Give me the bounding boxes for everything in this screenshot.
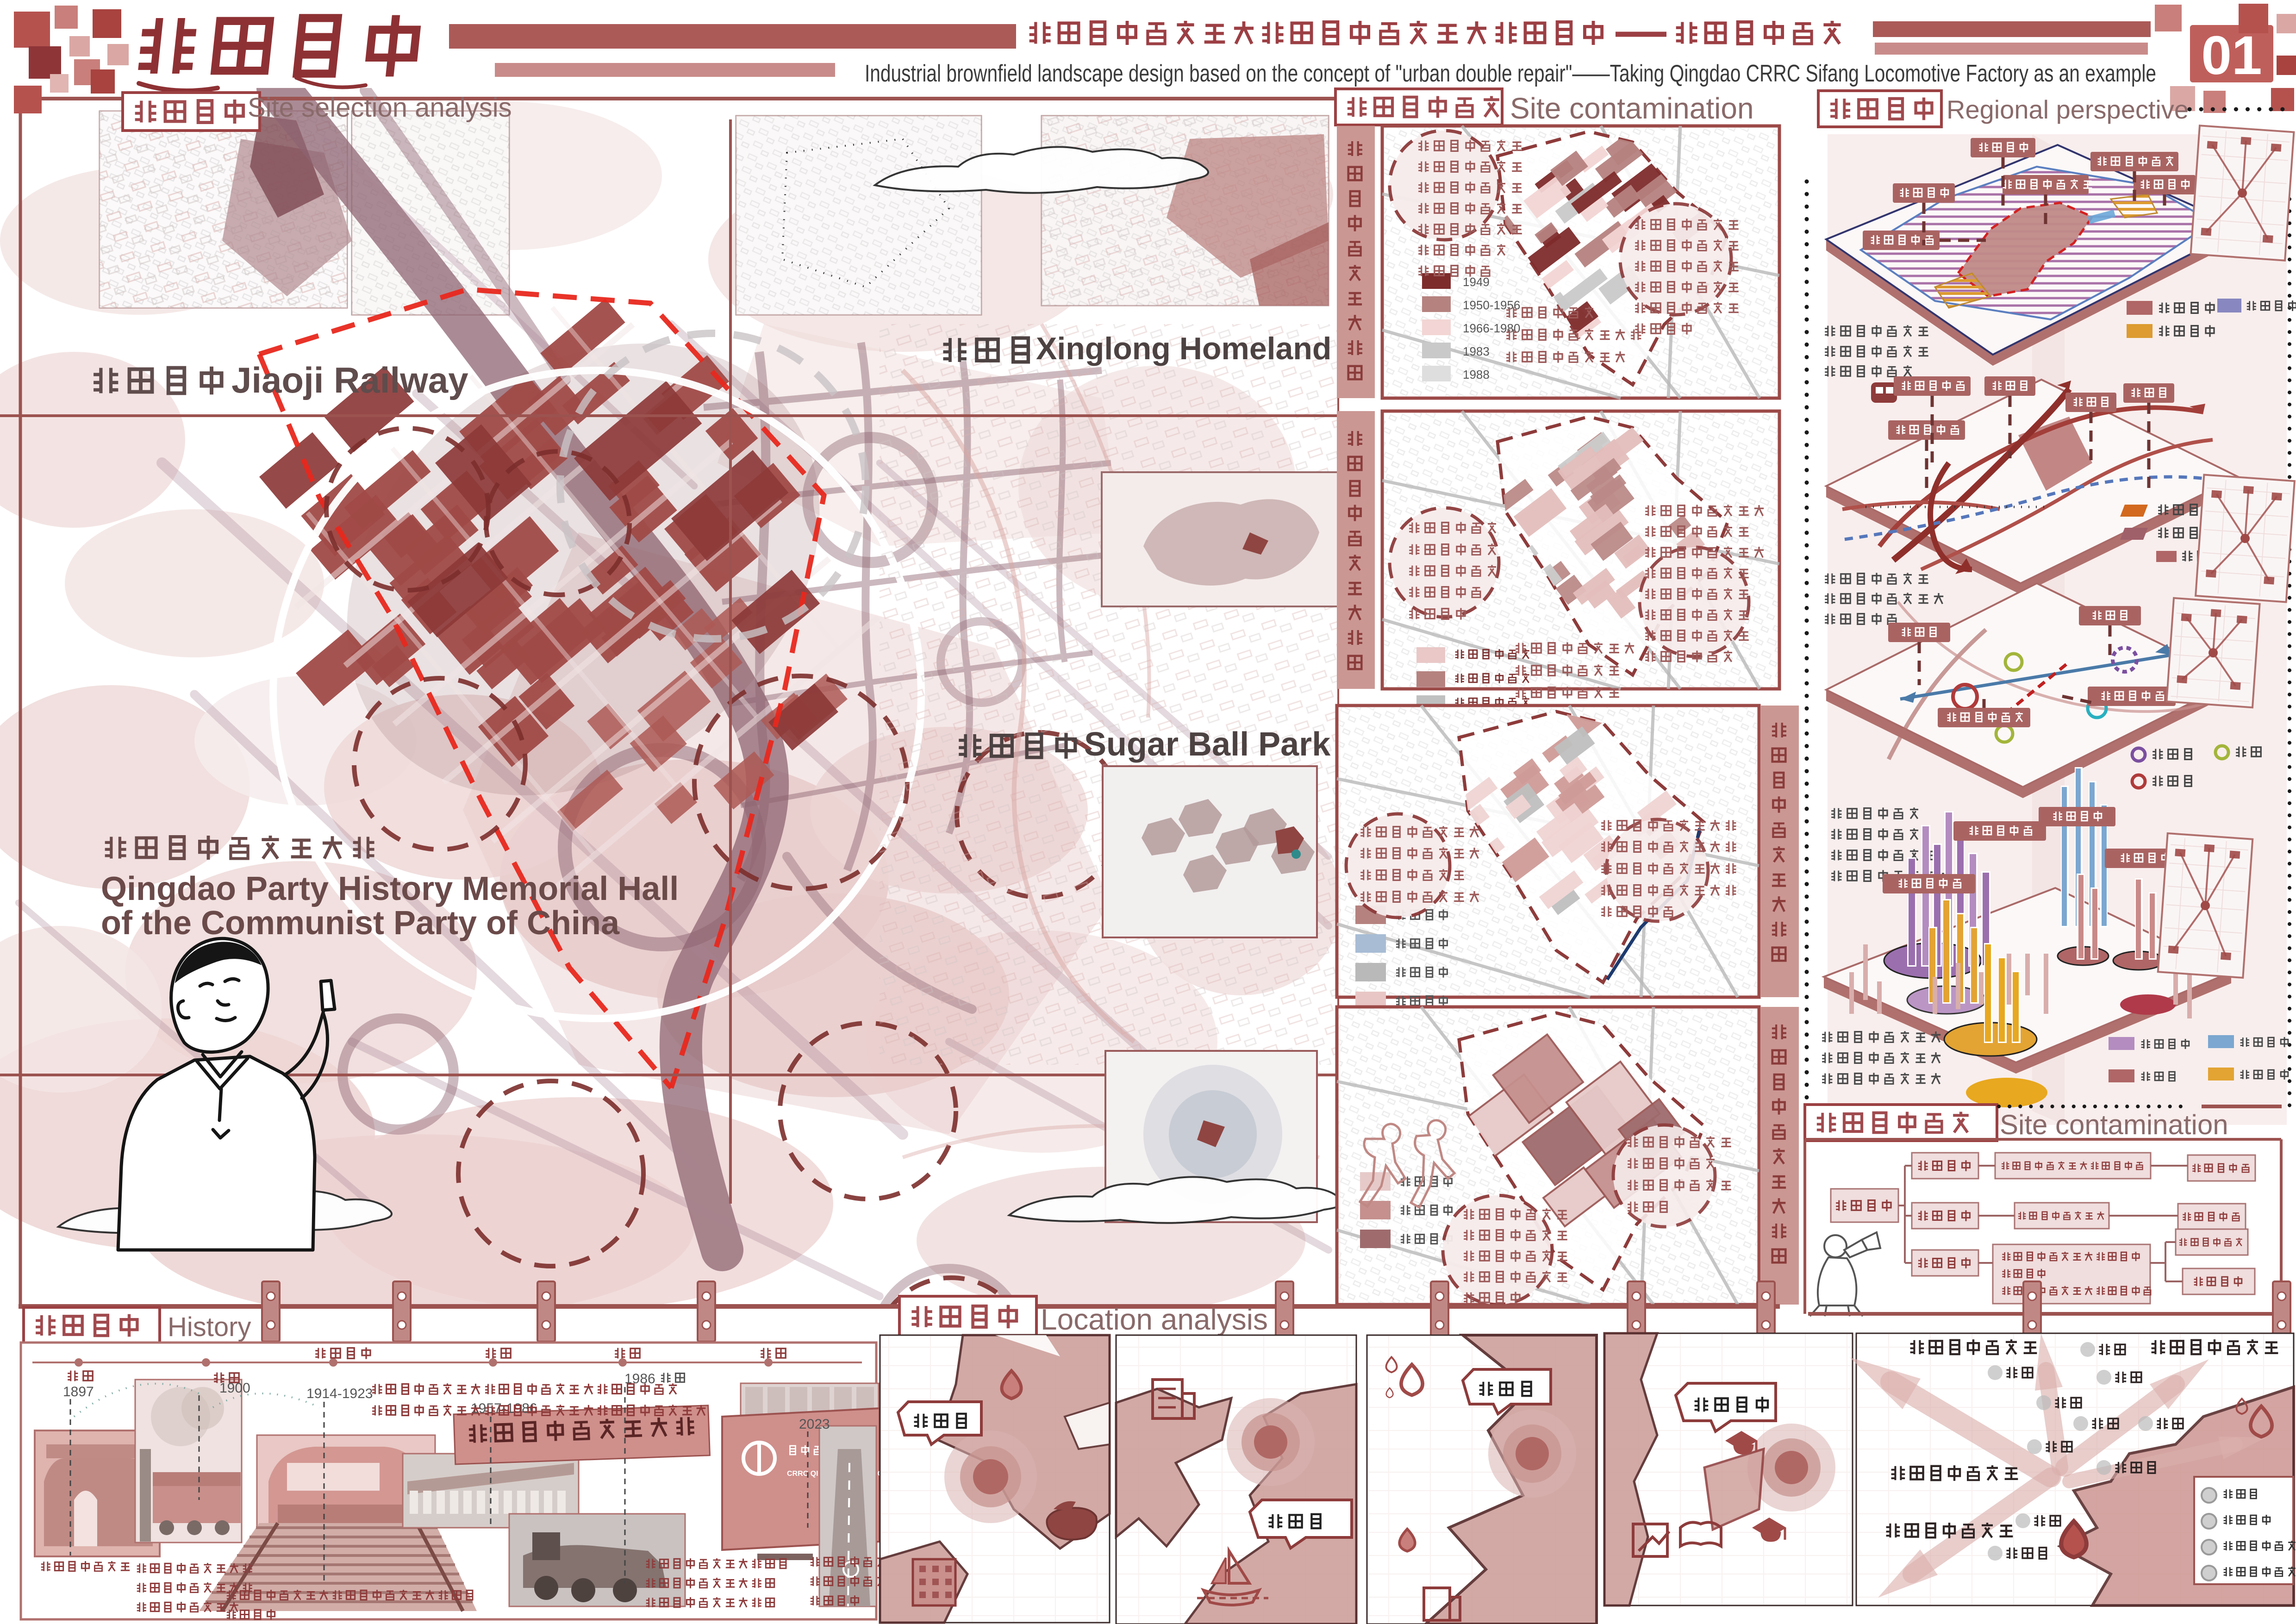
svg-text:Sugar Ball Park: Sugar Ball Park (1084, 726, 1331, 763)
svg-text:Site contamination: Site contamination (1510, 92, 1754, 125)
svg-text:History: History (168, 1312, 251, 1342)
svg-text:1988: 1988 (1463, 368, 1490, 381)
svg-text:2023: 2023 (799, 1417, 830, 1432)
svg-text:1900: 1900 (219, 1380, 250, 1396)
svg-text:Xinglong Homeland: Xinglong Homeland (1036, 331, 1331, 366)
svg-text:1966-1980: 1966-1980 (1463, 321, 1520, 335)
svg-text:1897: 1897 (63, 1384, 94, 1399)
svg-text:Location analysis: Location analysis (1041, 1303, 1268, 1336)
svg-text:1949: 1949 (1463, 275, 1490, 289)
svg-text:Qingdao Party History Memorial: Qingdao Party History Memorial Hall (101, 870, 679, 907)
svg-text:1914-1923: 1914-1923 (306, 1386, 373, 1401)
svg-text:1950-1956: 1950-1956 (1463, 298, 1520, 312)
svg-text:Industrial brownfield landscap: Industrial brownfield landscape design b… (865, 60, 2156, 87)
svg-text:Jiaoji Railway: Jiaoji Railway (231, 360, 468, 400)
svg-text:Site contamination: Site contamination (2000, 1109, 2228, 1140)
svg-text:of the Communist Party of Chin: of the Communist Party of China (101, 905, 620, 942)
svg-text:1983: 1983 (1463, 344, 1490, 358)
svg-text:01: 01 (2201, 25, 2262, 86)
svg-text:Site selection analysis: Site selection analysis (248, 93, 512, 123)
svg-text:Regional perspective: Regional perspective (1947, 95, 2189, 124)
